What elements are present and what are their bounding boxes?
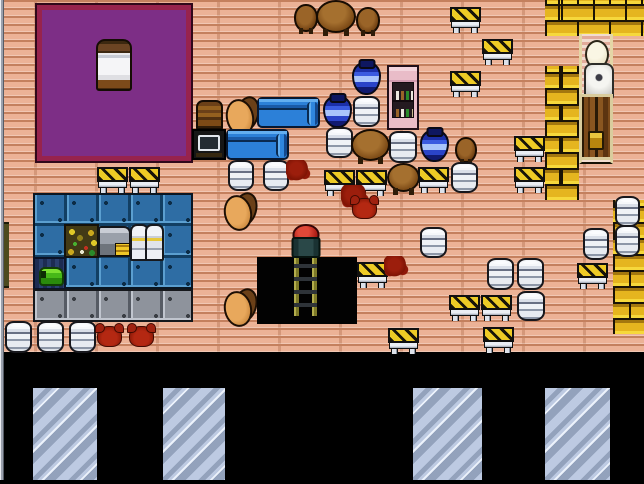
wooden-door[interactable] [579, 94, 613, 160]
striped-wall-panel [545, 388, 610, 480]
white-pot[interactable] [583, 228, 609, 260]
green-item-display[interactable] [33, 257, 66, 290]
crab[interactable] [129, 326, 154, 347]
hazard-barrier[interactable] [449, 295, 480, 321]
hazard-barrier[interactable] [129, 167, 160, 193]
stool[interactable] [356, 7, 380, 34]
striped-wall-panel [163, 388, 225, 480]
forge-machine[interactable] [98, 226, 131, 257]
white-pot[interactable] [487, 258, 514, 290]
white-pot[interactable] [451, 162, 478, 193]
hazard-barrier[interactable] [483, 327, 514, 353]
white-pot[interactable] [69, 321, 96, 353]
hazard-barrier[interactable] [97, 167, 128, 193]
hazard-barrier[interactable] [482, 39, 513, 65]
crab[interactable] [352, 198, 377, 219]
playfield[interactable] [0, 0, 644, 484]
round-table[interactable] [316, 0, 356, 33]
sofa[interactable] [257, 97, 320, 128]
white-pot[interactable] [420, 227, 447, 258]
game-viewport[interactable] [0, 0, 644, 484]
yellow-brick-wall [545, 0, 644, 36]
blue-vase[interactable] [352, 61, 381, 95]
window-border-bottom [0, 480, 644, 484]
round-table[interactable] [351, 129, 390, 161]
leaning-table[interactable] [224, 288, 257, 323]
hazard-barrier[interactable] [450, 71, 481, 97]
blood-splat [384, 256, 410, 278]
white-pot[interactable] [37, 321, 64, 353]
stool[interactable] [294, 4, 318, 32]
window-border-left [0, 0, 4, 484]
white-pot[interactable] [5, 321, 32, 353]
white-pot[interactable] [228, 160, 254, 191]
white-pot[interactable] [517, 291, 545, 321]
hazard-barrier[interactable] [577, 263, 608, 289]
crab[interactable] [97, 326, 122, 347]
white-pot[interactable] [615, 225, 640, 257]
bed[interactable] [96, 39, 132, 91]
leaning-table[interactable] [224, 192, 257, 227]
wooden-chair[interactable] [196, 100, 223, 130]
leaning-table[interactable] [226, 96, 259, 132]
hazard-barrier[interactable] [388, 328, 419, 354]
yellow-brick-wall [545, 66, 579, 200]
blood-splat [286, 160, 312, 182]
white-pot[interactable] [353, 96, 380, 127]
shelf-cabinet[interactable] [387, 65, 419, 130]
white-pot[interactable] [615, 196, 640, 227]
player-character[interactable] [292, 224, 319, 258]
hazard-barrier[interactable] [514, 167, 545, 193]
round-table[interactable] [387, 163, 420, 192]
hazard-barrier[interactable] [450, 7, 481, 33]
white-pot[interactable] [326, 127, 353, 158]
striped-wall-panel [413, 388, 482, 480]
armor-display[interactable] [130, 224, 164, 258]
blue-vase[interactable] [323, 95, 352, 128]
hazard-barrier[interactable] [418, 167, 449, 193]
white-pot[interactable] [389, 131, 417, 163]
hazard-barrier[interactable] [514, 136, 545, 162]
sofa[interactable] [226, 129, 289, 160]
blue-vase[interactable] [420, 129, 449, 162]
striped-wall-panel [33, 388, 97, 480]
counter-front-panels [33, 289, 193, 322]
hazard-barrier[interactable] [481, 295, 512, 321]
screen-edge-object [4, 222, 9, 288]
white-pot[interactable] [517, 258, 544, 290]
tv-set[interactable] [192, 129, 226, 160]
statue[interactable] [584, 40, 610, 96]
goods-pile[interactable] [64, 224, 99, 258]
stool[interactable] [455, 137, 477, 163]
